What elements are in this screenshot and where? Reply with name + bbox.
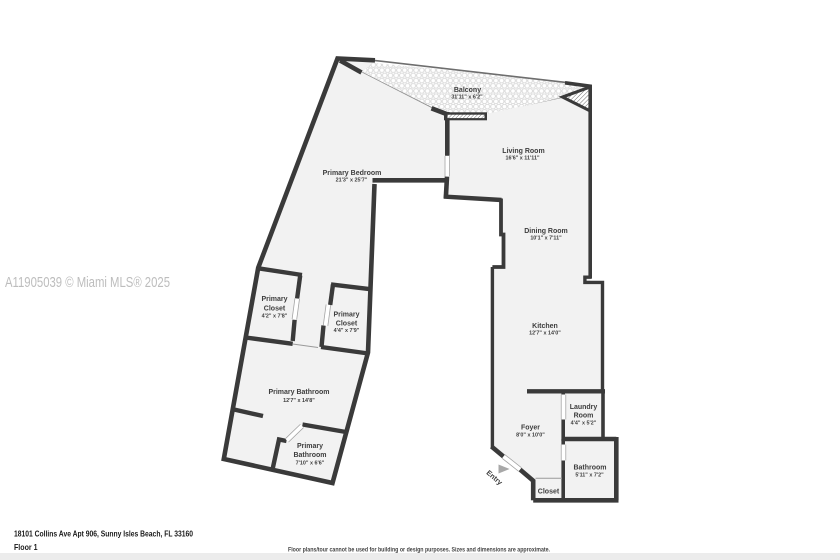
svg-text:12'7" x 14'8": 12'7" x 14'8" — [283, 398, 315, 404]
svg-text:8'0" x 10'0": 8'0" x 10'0" — [516, 432, 545, 438]
svg-text:4'4" x 5'2": 4'4" x 5'2" — [571, 421, 597, 427]
svg-text:5'11" x 7'2": 5'11" x 7'2" — [575, 472, 604, 478]
svg-text:Floor plans/tour cannot be use: Floor plans/tour cannot be used for buil… — [288, 548, 550, 554]
svg-text:7'10" x 6'6": 7'10" x 6'6" — [296, 460, 325, 466]
svg-text:Closet: Closet — [538, 489, 560, 496]
svg-text:Primary Bedroom: Primary Bedroom — [323, 170, 382, 177]
svg-text:Primary Bathroom: Primary Bathroom — [268, 389, 329, 396]
svg-text:Bathroom: Bathroom — [293, 452, 326, 459]
svg-text:Primary: Primary — [261, 296, 287, 303]
svg-text:12'7" x 14'0": 12'7" x 14'0" — [529, 331, 561, 337]
svg-text:31'11" x 6'2": 31'11" x 6'2" — [451, 95, 483, 101]
svg-text:Dining Room: Dining Room — [524, 228, 568, 235]
svg-text:21'3" x 25'7": 21'3" x 25'7" — [336, 177, 368, 183]
svg-text:Foyer: Foyer — [521, 425, 540, 432]
svg-text:Bathroom: Bathroom — [573, 465, 606, 472]
svg-text:16'6" x 11'11": 16'6" x 11'11" — [505, 156, 540, 162]
svg-text:Primary: Primary — [297, 443, 323, 450]
svg-text:Closet: Closet — [264, 305, 286, 312]
svg-text:18101 Collins Ave Apt 906, Sun: 18101 Collins Ave Apt 906, Sunny Isles B… — [14, 528, 193, 538]
svg-text:A11905039 © Miami MLS® 2025: A11905039 © Miami MLS® 2025 — [5, 275, 170, 291]
svg-text:10'1" x 7'11": 10'1" x 7'11" — [530, 236, 562, 242]
svg-text:Room: Room — [574, 412, 594, 419]
svg-text:4'2" x 7'8": 4'2" x 7'8" — [262, 314, 288, 320]
svg-text:Balcony: Balcony — [454, 87, 481, 94]
svg-text:Primary: Primary — [333, 312, 359, 319]
svg-text:Closet: Closet — [336, 320, 358, 327]
svg-text:Laundry: Laundry — [570, 404, 598, 411]
svg-text:Kitchen: Kitchen — [532, 323, 558, 330]
svg-text:Living Room: Living Room — [502, 148, 544, 155]
svg-text:Floor 1: Floor 1 — [14, 542, 38, 552]
svg-text:4'4" x 7'9": 4'4" x 7'9" — [334, 328, 360, 334]
